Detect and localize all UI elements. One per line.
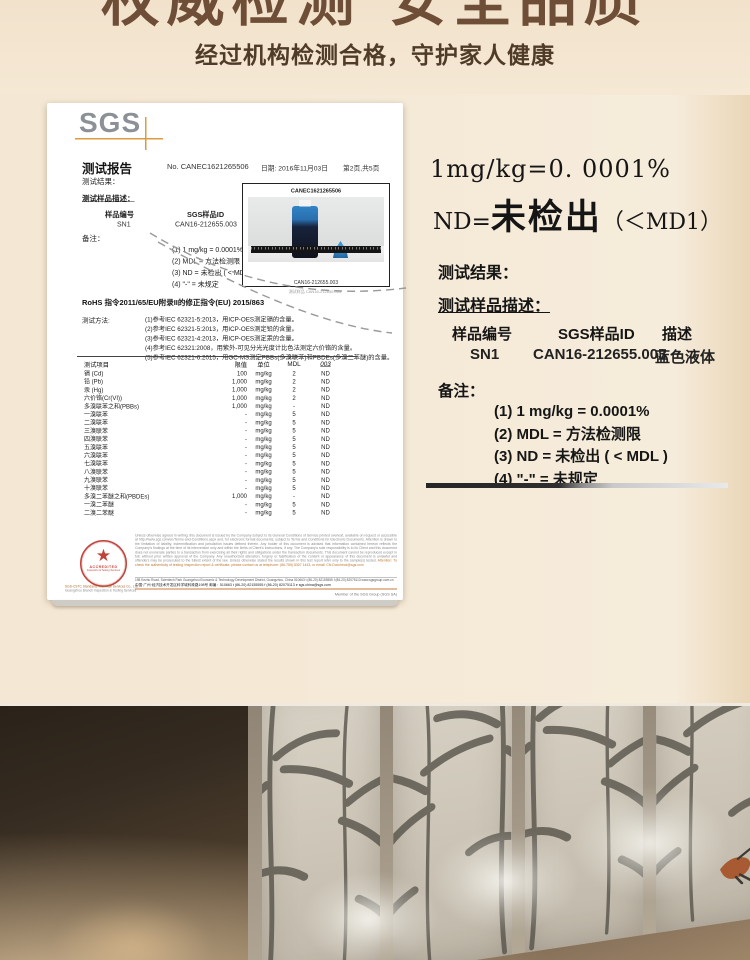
footer-address-cn: 中国·广州·经济技术开发区科学城科珠路198号 邮编：510663 t (86-… (135, 583, 397, 588)
callout-remark-item: (1) 1 mg/kg = 0.0001% (494, 401, 668, 424)
remarks-label: 备注： (82, 233, 105, 244)
table-row: 多溴二苯醚之和(PBDEs) 1,000 mg/kg - ND (77, 492, 357, 500)
spotlight (570, 785, 730, 901)
method-item: (3)参考IEC 62321-4:2013，用ICP-OES测定汞的含量。 (145, 334, 395, 344)
page-title: 权威检测 安全品质 (0, 0, 750, 37)
sample-col-id: 样品编号 (105, 209, 134, 220)
certificate-section: SGS 测试报告 No. CANEC1621265506 日期: 2016年11… (0, 95, 750, 703)
table-row: 铅 (Pb) 1,000 mg/kg 2 ND (77, 377, 357, 385)
callout-remarks-label: 备注： (438, 379, 485, 401)
table-row: 多溴联苯之和(PBBs) 1,000 mg/kg - ND (77, 402, 357, 410)
logo-crosshair-horizontal (75, 138, 163, 140)
report-pages: 第2页,共5页 (343, 163, 379, 173)
sample-col-sgsid: SGS样品ID (187, 209, 224, 220)
showroom-photo (0, 703, 750, 960)
method-item: (2)参考IEC 62321-5:2013，用ICP-OES测定铅的含量。 (145, 325, 395, 335)
table-row: 六价铬(Cr(VI)) 1,000 mg/kg 2 ND (77, 394, 357, 402)
hero-banner: 权威检测 安全品质 经过机构检测合格，守护家人健康 (0, 0, 750, 95)
table-row: 九溴联苯 - mg/kg 5 ND (77, 476, 357, 484)
method-label: 测试方法: (82, 315, 110, 325)
report-date: 日期: 2016年11月03日 (261, 163, 328, 173)
table-row: 一溴二苯醚 - mg/kg 5 ND (77, 500, 357, 508)
sample-photo-bottom-label: CAN16-212655.003 (243, 280, 389, 286)
sgs-logo: SGS (79, 106, 141, 139)
mg-equivalence: 1mg/kg=0. 0001% (430, 155, 671, 183)
results-table-header: 测试项目 限值 单位 MDL 003 (77, 359, 357, 369)
callout-sample-no: SN1 (470, 346, 499, 363)
sample-desc-label: 测试样品描述： (82, 193, 135, 204)
spotlight (300, 871, 440, 960)
callout-sample-id: CAN16-212655.003 (533, 346, 666, 363)
page-subtitle: 经过机构检测合格，守护家人健康 (0, 36, 750, 70)
method-item: (1)参考IEC 62321-5:2013，用ICP-OES测定镉的含量。 (145, 315, 395, 325)
callout-remark-item: (3) ND = 未检出 ( < MDL ) (494, 446, 668, 469)
callout-sample-desc: 蓝色液体 (655, 346, 715, 367)
spotlight (430, 829, 580, 933)
sample-photo-caption: 测试样品 CAN16-212655.003 (242, 289, 388, 295)
nd-not-detected: 未检出 (491, 189, 602, 240)
rohs-directive-line: RoHS 指令2011/65/EU附录II的修正指令(EU) 2015/863 (82, 297, 264, 308)
divider-gradient-bar (426, 483, 728, 488)
method-item: (4)参考IEC 62321:2008，用紫外-可见分光光度计比色法测定六价铬的… (145, 344, 395, 354)
table-row: 镉 (Cd) 100 mg/kg 2 ND (77, 369, 357, 377)
warm-wall-glow (18, 881, 248, 960)
nd-line: ND= 未检出 （＜MD1） (433, 189, 722, 240)
callout-remarks-list: (1) 1 mg/kg = 0.0001%(2) MDL = 方法检测限(3) … (494, 401, 668, 491)
photo-top-edge (0, 703, 750, 706)
certificate-card: SGS 测试报告 No. CANEC1621265506 日期: 2016年11… (47, 103, 403, 600)
table-row: 汞 (Hg) 1,000 mg/kg 2 ND (77, 385, 357, 393)
table-row: 六溴联苯 - mg/kg 5 ND (77, 451, 357, 459)
result-label: 测试结果： (82, 176, 120, 187)
callout-sample-desc-label: 测试样品描述： (438, 292, 550, 316)
table-row: 八溴联苯 - mg/kg 5 ND (77, 467, 357, 475)
results-table: 测试项目 限值 单位 MDL 003 镉 (Cd) 100 mg/kg 2 N (77, 359, 357, 517)
callout-result-label: 测试结果： (438, 259, 518, 283)
logo-crosshair-vertical (145, 117, 147, 150)
report-title: 测试报告 (82, 159, 132, 177)
table-row: 四溴联苯 - mg/kg 5 ND (77, 435, 357, 443)
callout-remark-item: (2) MDL = 方法检测限 (494, 424, 668, 447)
legal-disclaimer: Unless otherwise agreed in writing, this… (135, 534, 397, 568)
table-row: 一溴联苯 - mg/kg 5 ND (77, 410, 357, 418)
table-row: 三溴联苯 - mg/kg 5 ND (77, 426, 357, 434)
table-row: 十溴联苯 - mg/kg 5 ND (77, 484, 357, 492)
sample-photo (248, 197, 384, 262)
footer-address-box: 198 Kezhu Road, Scientech Park Guangzhou… (135, 577, 397, 590)
sample-photo-top-label: CANEC1621265506 (243, 188, 389, 194)
sgs-member-line: Member of the SGS Group (SGS SA) (237, 592, 397, 597)
sample-sgs-id: CAN16-212655.003 (175, 220, 237, 228)
results-table-body: 镉 (Cd) 100 mg/kg 2 ND 铅 (Pb) 1,000 mg/kg… (77, 369, 357, 517)
sample-photo-frame: CANEC1621265506 CAN16-212655.003 (242, 183, 390, 287)
sample-no: SN1 (117, 220, 131, 228)
star-icon: ★ (82, 546, 126, 566)
lab-address-lines: SGS-CSTC Standards Technical Services Co… (65, 585, 145, 593)
ruler-strip (251, 246, 381, 253)
accreditation-stamp: ★ ACCREDITED Inspection & Testing Servic… (80, 540, 127, 587)
table-row: 五溴联苯 - mg/kg 5 ND (77, 443, 357, 451)
table-row: 二溴二苯醚 - mg/kg 5 ND (77, 508, 357, 516)
results-table-topline (77, 356, 357, 357)
table-row: 二溴联苯 - mg/kg 5 ND (77, 418, 357, 426)
table-row: 七溴联苯 - mg/kg 5 ND (77, 459, 357, 467)
report-number: No. CANEC1621265506 (167, 163, 249, 172)
